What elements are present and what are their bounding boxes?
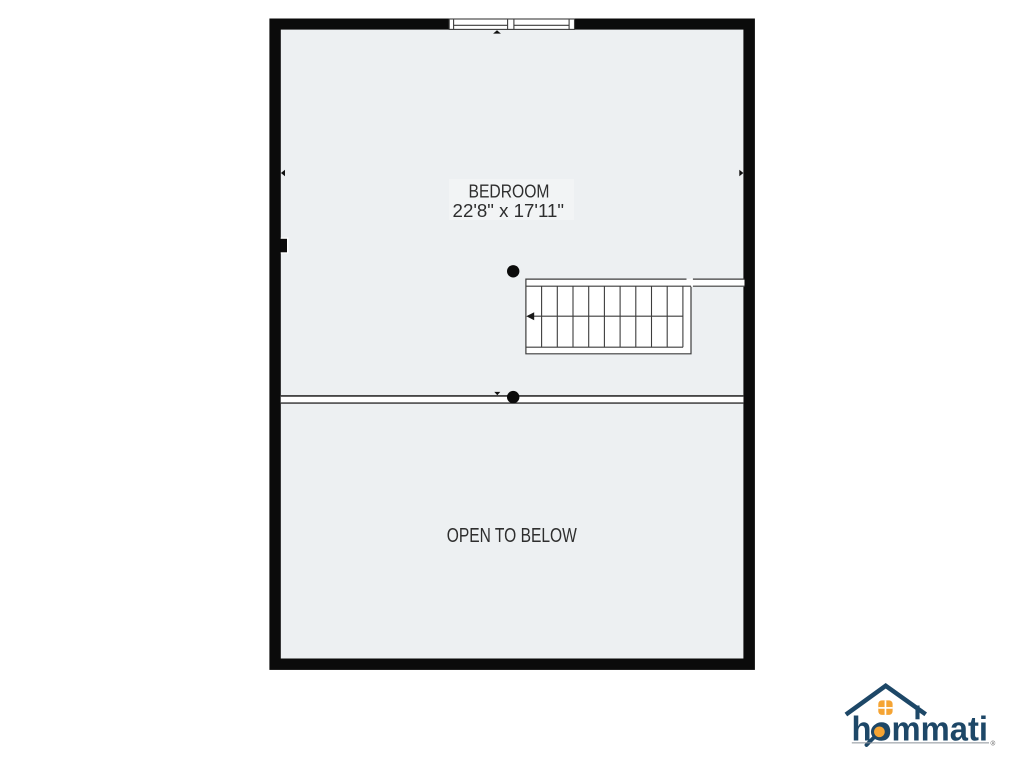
svg-text:22'8" x 17'11": 22'8" x 17'11" [453, 200, 565, 221]
svg-text:OPEN TO BELOW: OPEN TO BELOW [447, 525, 577, 547]
svg-text:®: ® [991, 740, 996, 748]
svg-text:BEDROOM: BEDROOM [469, 182, 550, 202]
